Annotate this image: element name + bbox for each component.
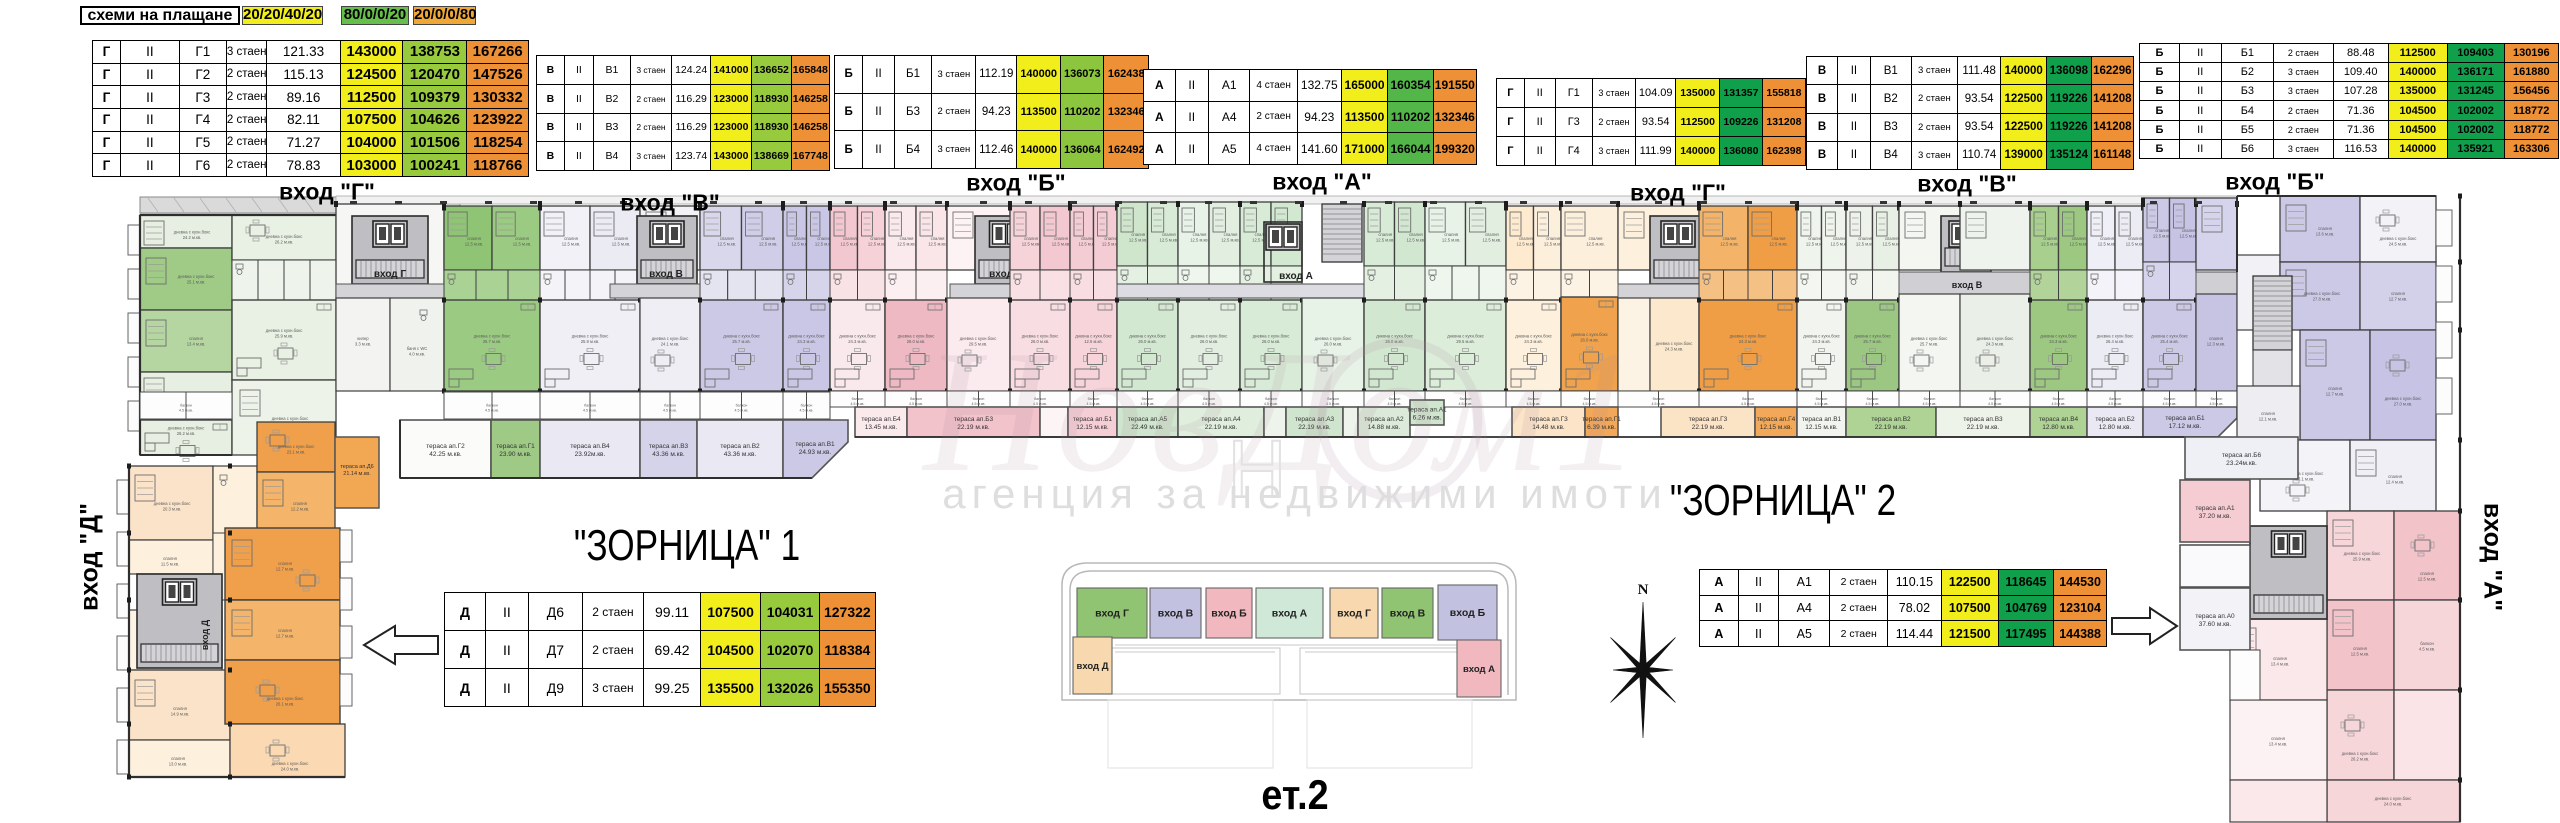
svg-text:тераса ап.В3: тераса ап.В3 [649, 443, 689, 450]
svg-text:12.5 м.кв.: 12.5 м.кв. [1856, 242, 1875, 247]
svg-text:12.5 м.кв.: 12.5 м.кв. [1221, 238, 1240, 243]
svg-text:спалня: спалня [1772, 236, 1786, 241]
svg-text:вход Г: вход Г [1337, 608, 1371, 620]
svg-text:спалня: спалня [1485, 232, 1499, 237]
svg-text:12.5 м.кв.: 12.5 м.кв. [465, 242, 484, 247]
svg-text:12.5 м.кв.: 12.5 м.кв. [1586, 242, 1605, 247]
svg-text:4.5 м.кв.: 4.5 м.кв. [2210, 402, 2224, 406]
svg-text:24.3 м.кв.: 24.3 м.кв. [1812, 339, 1831, 344]
svg-text:тераса ап.А1: тераса ап.А1 [2195, 505, 2235, 512]
svg-text:20.3 м.кв.: 20.3 м.кв. [163, 507, 182, 512]
svg-text:12.5 м.кв.: 12.5 м.кв. [612, 242, 631, 247]
svg-text:спалня: спалня [2328, 386, 2342, 391]
svg-text:балкон: балкон [486, 404, 498, 408]
svg-text:12.5 м.кв.: 12.5 м.кв. [1544, 242, 1563, 247]
svg-text:спалня: спалня [1546, 236, 1560, 241]
svg-text:тераса ап.Г2: тераса ап.Г2 [426, 443, 465, 450]
svg-text:24.0 м.кв.: 24.0 м.кв. [281, 767, 300, 772]
svg-text:вход Д: вход Д [200, 619, 210, 650]
svg-text:спалня: спалня [1589, 236, 1603, 241]
svg-text:4.0 м.кв.: 4.0 м.кв. [409, 352, 425, 357]
svg-text:спалня: спалня [1858, 236, 1872, 241]
svg-text:12.5 м.кв.: 12.5 м.кв. [2126, 242, 2145, 247]
svg-text:спалня: спалня [564, 236, 578, 241]
svg-text:12.5 м.кв.: 12.5 м.кв. [2418, 577, 2437, 582]
svg-text:балкон: балкон [852, 397, 864, 401]
svg-text:12.7 м.кв.: 12.7 м.кв. [276, 634, 295, 639]
svg-text:24.5 м.кв.: 24.5 м.кв. [2389, 242, 2408, 247]
svg-text:тераса ап.Г4: тераса ап.Г4 [1757, 416, 1796, 423]
svg-text:12.5 м.кв.: 12.5 м.кв. [2041, 242, 2060, 247]
svg-text:балкон: балкон [1653, 397, 1665, 401]
svg-text:13.6 м.кв.: 13.6 м.кв. [2316, 232, 2335, 237]
svg-text:баня с WC: баня с WC [407, 346, 428, 351]
svg-text:26.2 м.кв.: 26.2 м.кв. [177, 431, 196, 436]
svg-text:тераса ап.Б6: тераса ап.Б6 [2222, 452, 2262, 459]
svg-text:4.5 м.кв.: 4.5 м.кв. [1866, 402, 1880, 406]
svg-text:26.2 м.кв.: 26.2 м.кв. [275, 240, 294, 245]
svg-text:24.0 м.кв.: 24.0 м.кв. [2384, 802, 2403, 807]
svg-text:дневна с кухн.бокс: дневна с кухн.бокс [1854, 334, 1891, 339]
svg-text:спалня: спалня [2043, 236, 2057, 241]
svg-text:25.7 м.кв.: 25.7 м.кв. [1920, 342, 1939, 347]
svg-text:13.0 м.кв.: 13.0 м.кв. [169, 762, 188, 767]
svg-text:вход Г: вход Г [374, 269, 407, 280]
svg-text:26.4 м.кв.: 26.4 м.кв. [2106, 339, 2125, 344]
svg-text:12.15 м.кв.: 12.15 м.кв. [1760, 424, 1793, 431]
svg-text:дневна с кухн.бокс: дневна с кухн.бокс [272, 416, 309, 421]
svg-text:дневна с кухн.бокс: дневна с кухн.бокс [2342, 751, 2379, 756]
svg-text:дневна с кухн.бокс: дневна с кухн.бокс [2040, 334, 2077, 339]
svg-text:12.5 м.кв.: 12.5 м.кв. [1129, 238, 1148, 243]
svg-text:вход Б: вход Б [1450, 607, 1486, 619]
svg-text:12.7 м.кв.: 12.7 м.кв. [2389, 297, 2408, 302]
svg-text:спалня: спалня [1162, 232, 1176, 237]
svg-text:спалня: спалня [173, 706, 187, 711]
svg-text:балкон: балкон [584, 404, 596, 408]
svg-text:4.5 м.кв.: 4.5 м.кв. [485, 409, 499, 413]
svg-text:4.5 м.кв.: 4.5 м.кв. [179, 409, 193, 413]
svg-text:13.4 м.кв.: 13.4 м.кв. [2271, 662, 2290, 667]
svg-text:4.5 м.кв.: 4.5 м.кв. [800, 409, 814, 413]
svg-text:спалня: спалня [1409, 232, 1423, 237]
svg-text:тераса ап.В4: тераса ап.В4 [2039, 416, 2079, 423]
svg-text:25.9 м.кв.: 25.9 м.кв. [2353, 557, 2372, 562]
svg-text:спалня: спалня [794, 236, 808, 241]
svg-text:23.24м.кв.: 23.24м.кв. [2226, 460, 2257, 467]
svg-text:дневна с кухн.бокс: дневна с кухн.бокс [174, 230, 211, 235]
svg-text:вход А: вход А [1279, 271, 1313, 282]
svg-text:спалня: спалня [1104, 236, 1118, 241]
svg-text:тераса ап.В2: тераса ап.В2 [720, 443, 760, 450]
svg-text:4.5 м.кв.: 4.5 м.кв. [583, 409, 597, 413]
svg-text:дневна с кухн.бокс: дневна с кухн.бокс [278, 444, 315, 449]
svg-text:дневна с кухн.бокс: дневна с кухн.бокс [572, 334, 609, 339]
svg-text:11.5 м.кв.: 11.5 м.кв. [161, 562, 179, 567]
svg-text:спалня: спалня [1519, 236, 1533, 241]
svg-text:дневна с кухн.бокс: дневна с кухн.бокс [788, 334, 825, 339]
svg-text:тераса ап.В1: тераса ап.В1 [1802, 416, 1842, 423]
svg-text:4.5 м.кв.: 4.5 м.кв. [2052, 402, 2066, 406]
svg-text:спалня: спалня [2388, 474, 2402, 479]
svg-text:спалня: спалня [1444, 232, 1458, 237]
svg-text:25.7 м.кв.: 25.7 м.кв. [483, 339, 502, 344]
svg-text:вход Д: вход Д [1076, 661, 1108, 672]
svg-text:балкон: балкон [801, 404, 813, 408]
svg-text:4.5 м.кв.: 4.5 м.кв. [1741, 402, 1755, 406]
svg-text:спалня: спалня [467, 236, 481, 241]
svg-text:тераса ап.Г1: тераса ап.Г1 [496, 443, 535, 450]
svg-text:4.5 м.кв.: 4.5 м.кв. [1815, 402, 1829, 406]
svg-text:спалня: спалня [1193, 232, 1207, 237]
svg-text:22.19 м.кв.: 22.19 м.кв. [1875, 424, 1908, 431]
svg-text:12.5 м.кв.: 12.5 м.кв. [759, 242, 778, 247]
svg-text:спалня: спалня [2072, 236, 2086, 241]
svg-text:спалня: спалня [2182, 228, 2196, 233]
svg-text:спалня: спалня [1054, 236, 1068, 241]
svg-text:дневна с кухн.бокс: дневна с кухн.бокс [474, 334, 511, 339]
svg-text:килер: килер [357, 336, 369, 341]
svg-text:спалня: спалня [2420, 571, 2434, 576]
svg-text:вход Г: вход Г [1095, 608, 1129, 620]
svg-text:4.5 м.кв.: 4.5 м.кв. [663, 409, 677, 413]
svg-text:25.4 м.кв.: 25.4 м.кв. [2160, 339, 2179, 344]
svg-text:3.3 м.кв.: 3.3 м.кв. [355, 342, 371, 347]
svg-text:дневна с кухн.бокс: дневна с кухн.бокс [272, 761, 309, 766]
svg-text:23.1 м.кв.: 23.1 м.кв. [287, 450, 306, 455]
svg-text:дневна с кухн.бокс: дневна с кухн.бокс [1977, 336, 2014, 341]
svg-text:спалня: спалня [870, 236, 884, 241]
svg-text:12.5 м.кв.: 12.5 м.кв. [1483, 238, 1502, 243]
svg-text:вход В: вход В [649, 269, 683, 280]
svg-text:дневна с кухн.бокс: дневна с кухн.бокс [839, 334, 876, 339]
svg-text:балкон: балкон [910, 397, 922, 401]
svg-text:спалня: спалня [843, 236, 857, 241]
svg-text:дневна с кухн.бокс: дневна с кухн.бокс [1730, 334, 1767, 339]
svg-text:12.80 м.кв.: 12.80 м.кв. [2042, 424, 2075, 431]
svg-text:14.9 м.кв.: 14.9 м.кв. [171, 712, 190, 717]
svg-text:24.3 м.кв.: 24.3 м.кв. [1665, 347, 1684, 352]
svg-text:балкон: балкон [1742, 397, 1754, 401]
svg-text:21.14 м.кв.: 21.14 м.кв. [343, 471, 371, 477]
svg-text:12.5 м.кв.: 12.5 м.кв. [1022, 242, 1041, 247]
svg-text:27.8 м.кв.: 27.8 м.кв. [2313, 297, 2332, 302]
svg-text:спалня: спалня [1723, 236, 1737, 241]
svg-text:25.7 м.кв.: 25.7 м.кв. [1863, 339, 1882, 344]
svg-text:25.7 м.кв.: 25.7 м.кв. [732, 339, 751, 344]
svg-text:тераса ап.В4: тераса ап.В4 [570, 443, 610, 450]
svg-text:тераса ап.Б2: тераса ап.Б2 [2095, 416, 2135, 423]
svg-text:12.5 м.кв.: 12.5 м.кв. [2153, 234, 2172, 239]
svg-text:дневна с кухн.бокс: дневна с кухн.бокс [2151, 334, 2188, 339]
svg-text:12.2 м.кв.: 12.2 м.кв. [291, 507, 310, 512]
svg-text:4.5 м.кв.: 4.5 м.кв. [1988, 402, 2002, 406]
svg-text:12.5 м.кв.: 12.5 м.кв. [1052, 242, 1071, 247]
svg-text:тераса ап.В2: тераса ап.В2 [1871, 416, 1911, 423]
svg-text:спалня: спалня [1833, 236, 1847, 241]
svg-text:12.5 м.кв.: 12.5 м.кв. [868, 242, 887, 247]
svg-text:спалня: спалня [515, 236, 529, 241]
svg-text:вход А: вход А [1463, 664, 1495, 675]
svg-text:25.9 м.кв.: 25.9 м.кв. [275, 334, 294, 339]
svg-text:12.5 м.кв.: 12.5 м.кв. [2180, 234, 2199, 239]
svg-text:22.19 м.кв.: 22.19 м.кв. [1967, 424, 2000, 431]
svg-text:24.3 м.кв.: 24.3 м.кв. [797, 339, 816, 344]
svg-text:24.3 м.кв.: 24.3 м.кв. [2049, 339, 2068, 344]
svg-text:тераса ап.В3: тераса ап.В3 [1963, 416, 2003, 423]
svg-text:12.5 м.кв.: 12.5 м.кв. [1442, 238, 1461, 243]
svg-text:37.20 м.кв.: 37.20 м.кв. [2199, 513, 2232, 520]
svg-text:12.5 м.кв.: 12.5 м.кв. [1160, 238, 1179, 243]
svg-text:балкон: балкон [1816, 397, 1828, 401]
svg-text:дневна с кухн.бокс: дневна с кухн.бокс [723, 334, 760, 339]
svg-text:12.5 м.кв.: 12.5 м.кв. [2351, 652, 2370, 657]
svg-text:спалня: спалня [278, 561, 292, 566]
svg-text:12.15 м.кв.: 12.15 м.кв. [1805, 424, 1838, 431]
svg-text:24.3 м.кв.: 24.3 м.кв. [1739, 339, 1758, 344]
svg-text:тераса ап.В1: тераса ап.В1 [795, 441, 835, 448]
svg-text:спалня: спалня [1081, 236, 1095, 241]
svg-text:24.93 м.кв.: 24.93 м.кв. [799, 449, 832, 456]
svg-text:спалня: спалня [189, 336, 203, 341]
svg-text:спалня: спалня [2128, 236, 2142, 241]
svg-text:13.4 м.кв.: 13.4 м.кв. [187, 342, 206, 347]
svg-text:спалня: спалня [2155, 228, 2169, 233]
svg-text:37.60 м.кв.: 37.60 м.кв. [2199, 621, 2232, 628]
svg-text:12.5 м.кв.: 12.5 м.кв. [1883, 242, 1902, 247]
svg-text:12.5 м.кв.: 12.5 м.кв. [1720, 242, 1739, 247]
svg-text:дневна с кухн.бокс: дневна с кухн.бокс [178, 274, 215, 279]
svg-text:12.3 м.кв.: 12.3 м.кв. [2207, 342, 2226, 347]
svg-text:спалня: спалня [900, 236, 914, 241]
svg-text:балкон: балкон [1989, 397, 2001, 401]
svg-text:25.9 м.кв.: 25.9 м.кв. [581, 339, 600, 344]
svg-text:12.5 м.кв.: 12.5 м.кв. [1376, 238, 1395, 243]
svg-text:дневна с кухн.бокс: дневна с кухн.бокс [2344, 551, 2381, 556]
svg-text:балкон: балкон [1867, 397, 1879, 401]
svg-text:42.25 м.кв.: 42.25 м.кв. [429, 451, 462, 458]
svg-text:спалня: спалня [931, 236, 945, 241]
svg-text:26.2 м.кв.: 26.2 м.кв. [2351, 757, 2370, 762]
svg-text:балкон: балкон [180, 404, 192, 408]
svg-text:спалня: спалня [2271, 736, 2285, 741]
svg-text:12.5 м.кв.: 12.5 м.кв. [1407, 238, 1426, 243]
svg-text:4.5 м.кв.: 4.5 м.кв. [2419, 647, 2435, 652]
svg-text:вход А: вход А [1272, 608, 1308, 620]
svg-text:тераса ап.Б1: тераса ап.Б1 [2165, 415, 2205, 422]
svg-text:12.5 м.кв.: 12.5 м.кв. [841, 242, 860, 247]
svg-text:17.12 м.кв.: 17.12 м.кв. [2169, 423, 2202, 430]
svg-text:4.5 м.кв.: 4.5 м.кв. [2108, 402, 2122, 406]
svg-text:вход Б: вход Б [1211, 608, 1247, 620]
svg-text:спалня: спалня [163, 556, 177, 561]
svg-text:тераса ап.А0: тераса ап.А0 [2195, 613, 2235, 620]
svg-text:24.2 м.кв.: 24.2 м.кв. [183, 235, 202, 240]
svg-text:дневна с кухн.бокс: дневна с кухн.бокс [266, 328, 303, 333]
svg-text:балкон: балкон [664, 404, 676, 408]
svg-text:балкон: балкон [1924, 397, 1936, 401]
svg-text:12.5 м.кв.: 12.5 м.кв. [1769, 242, 1788, 247]
svg-text:дневна с кухн.бокс: дневна с кухн.бокс [1803, 334, 1840, 339]
svg-text:спалня: спалня [2353, 646, 2367, 651]
svg-text:24.3 м.кв.: 24.3 м.кв. [1986, 342, 2005, 347]
svg-text:12.5 м.кв.: 12.5 м.кв. [928, 242, 947, 247]
svg-text:дневна с кухн.бокс: дневна с кухн.бокс [154, 501, 191, 506]
svg-text:12.4 м.кв.: 12.4 м.кв. [2386, 480, 2405, 485]
svg-text:тераса ап.Б4: тераса ап.Б4 [861, 416, 901, 423]
svg-text:тераса ап.Д6: тераса ап.Д6 [340, 464, 373, 470]
svg-text:23.92м.кв.: 23.92м.кв. [575, 451, 606, 458]
svg-text:12.7 м.кв.: 12.7 м.кв. [276, 567, 295, 572]
svg-text:43.36 м.кв.: 43.36 м.кв. [724, 451, 757, 458]
svg-text:12.5 м.кв.: 12.5 м.кв. [718, 242, 737, 247]
svg-text:спалня: спалня [293, 501, 307, 506]
svg-text:дневна с кухн.бокс: дневна с кухн.бокс [267, 696, 304, 701]
svg-text:вход В: вход В [1390, 608, 1426, 620]
svg-text:спалня: спалня [2209, 336, 2223, 341]
svg-text:дневна с кухн.бокс: дневна с кухн.бокс [1911, 336, 1948, 341]
svg-text:дневна с кухн.бокс: дневна с кухн.бокс [1656, 341, 1693, 346]
svg-text:12.5 м.кв.: 12.5 м.кв. [513, 242, 532, 247]
svg-text:12.5 м.кв.: 12.5 м.кв. [2098, 242, 2117, 247]
svg-text:спалня: спалня [2261, 411, 2275, 416]
svg-text:12.5 м.кв.: 12.5 м.кв. [562, 242, 581, 247]
svg-text:4.5 м.кв.: 4.5 м.кв. [735, 409, 749, 413]
svg-text:23.90 м.кв.: 23.90 м.кв. [499, 451, 532, 458]
svg-text:4.5 м.кв.: 4.5 м.кв. [1923, 402, 1937, 406]
svg-text:N: N [1638, 582, 1649, 598]
svg-text:вход В: вход В [1158, 608, 1194, 620]
svg-text:спалня: спалня [1378, 232, 1392, 237]
svg-text:балкон: балкон [2109, 397, 2121, 401]
svg-text:22.19 м.кв.: 22.19 м.кв. [1692, 424, 1725, 431]
svg-text:дневна с кухн.бокс: дневна с кухн.бокс [2375, 796, 2412, 801]
svg-text:балкон: балкон [2420, 641, 2434, 646]
svg-text:спалня: спалня [1131, 232, 1145, 237]
svg-text:дневна с кухн.бокс: дневна с кухн.бокс [168, 426, 205, 431]
svg-text:43.36 м.кв.: 43.36 м.кв. [652, 451, 685, 458]
svg-text:12.5 м.кв.: 12.5 м.кв. [1517, 242, 1536, 247]
svg-text:12.5 м.кв.: 12.5 м.кв. [897, 242, 916, 247]
svg-text:спалня: спалня [1808, 236, 1822, 241]
svg-text:вход В: вход В [1952, 280, 1983, 290]
svg-text:24.3 м.кв.: 24.3 м.кв. [848, 339, 867, 344]
svg-text:балкон: балкон [2164, 397, 2176, 401]
svg-text:спалня: спалня [278, 628, 292, 633]
svg-text:спалня: спалня [1024, 236, 1038, 241]
svg-text:12.1 м.кв.: 12.1 м.кв. [2259, 417, 2278, 422]
svg-text:4.5 м.кв.: 4.5 м.кв. [851, 402, 865, 406]
svg-text:агенция за недвижими имоти: агенция за недвижими имоти [942, 470, 1667, 517]
svg-text:дневна с кухн.бокс: дневна с кухн.бокс [652, 336, 689, 341]
svg-text:спалня: спалня [761, 236, 775, 241]
svg-text:балкон: балкон [736, 404, 748, 408]
svg-text:спалня: спалня [1885, 236, 1899, 241]
svg-text:13.45 м.кв.: 13.45 м.кв. [865, 424, 898, 431]
svg-text:4.5 м.кв.: 4.5 м.кв. [909, 402, 923, 406]
svg-text:12.80 м.кв.: 12.80 м.кв. [2099, 424, 2132, 431]
svg-text:балкон: балкон [2211, 397, 2223, 401]
svg-text:спалня: спалня [817, 236, 831, 241]
svg-text:13.4 м.кв.: 13.4 м.кв. [2269, 742, 2288, 747]
svg-text:12.5 м.кв.: 12.5 м.кв. [2070, 242, 2089, 247]
svg-text:12.7 м.кв.: 12.7 м.кв. [2326, 392, 2345, 397]
svg-text:дневна с кухн.бокс: дневна с кухн.бокс [2380, 236, 2417, 241]
svg-text:тераса ап.Г3: тераса ап.Г3 [1689, 416, 1728, 423]
svg-text:4.5 м.кв.: 4.5 м.кв. [1652, 402, 1666, 406]
svg-text:12.5 м.кв.: 12.5 м.кв. [1190, 238, 1209, 243]
svg-text:дневна с кухн.бокс: дневна с кухн.бокс [2385, 396, 2422, 401]
svg-text:спалня: спалня [1224, 232, 1238, 237]
svg-text:спалня: спалня [2100, 236, 2114, 241]
svg-text:спалня: спалня [720, 236, 734, 241]
svg-text:спалня: спалня [2391, 291, 2405, 296]
svg-text:24.1 м.кв.: 24.1 м.кв. [661, 342, 680, 347]
svg-text:дневна с кухн.бокс: дневна с кухн.бокс [266, 234, 303, 239]
svg-text:дневна с кухн.бокс: дневна с кухн.бокс [2097, 334, 2134, 339]
svg-text:спалня: спалня [171, 756, 185, 761]
svg-text:балкон: балкон [2053, 397, 2065, 401]
svg-text:4.5 м.кв.: 4.5 м.кв. [2163, 402, 2177, 406]
svg-text:спалня: спалня [614, 236, 628, 241]
svg-text:27.0 м.кв.: 27.0 м.кв. [2394, 402, 2413, 407]
svg-text:26.1 м.кв.: 26.1 м.кв. [276, 702, 295, 707]
svg-text:спалня: спалня [2273, 656, 2287, 661]
svg-text:дневна с кухн.бокс: дневна с кухн.бокс [2304, 291, 2341, 296]
svg-text:25.1 м.кв.: 25.1 м.кв. [187, 280, 206, 285]
svg-text:спалня: спалня [2318, 226, 2332, 231]
